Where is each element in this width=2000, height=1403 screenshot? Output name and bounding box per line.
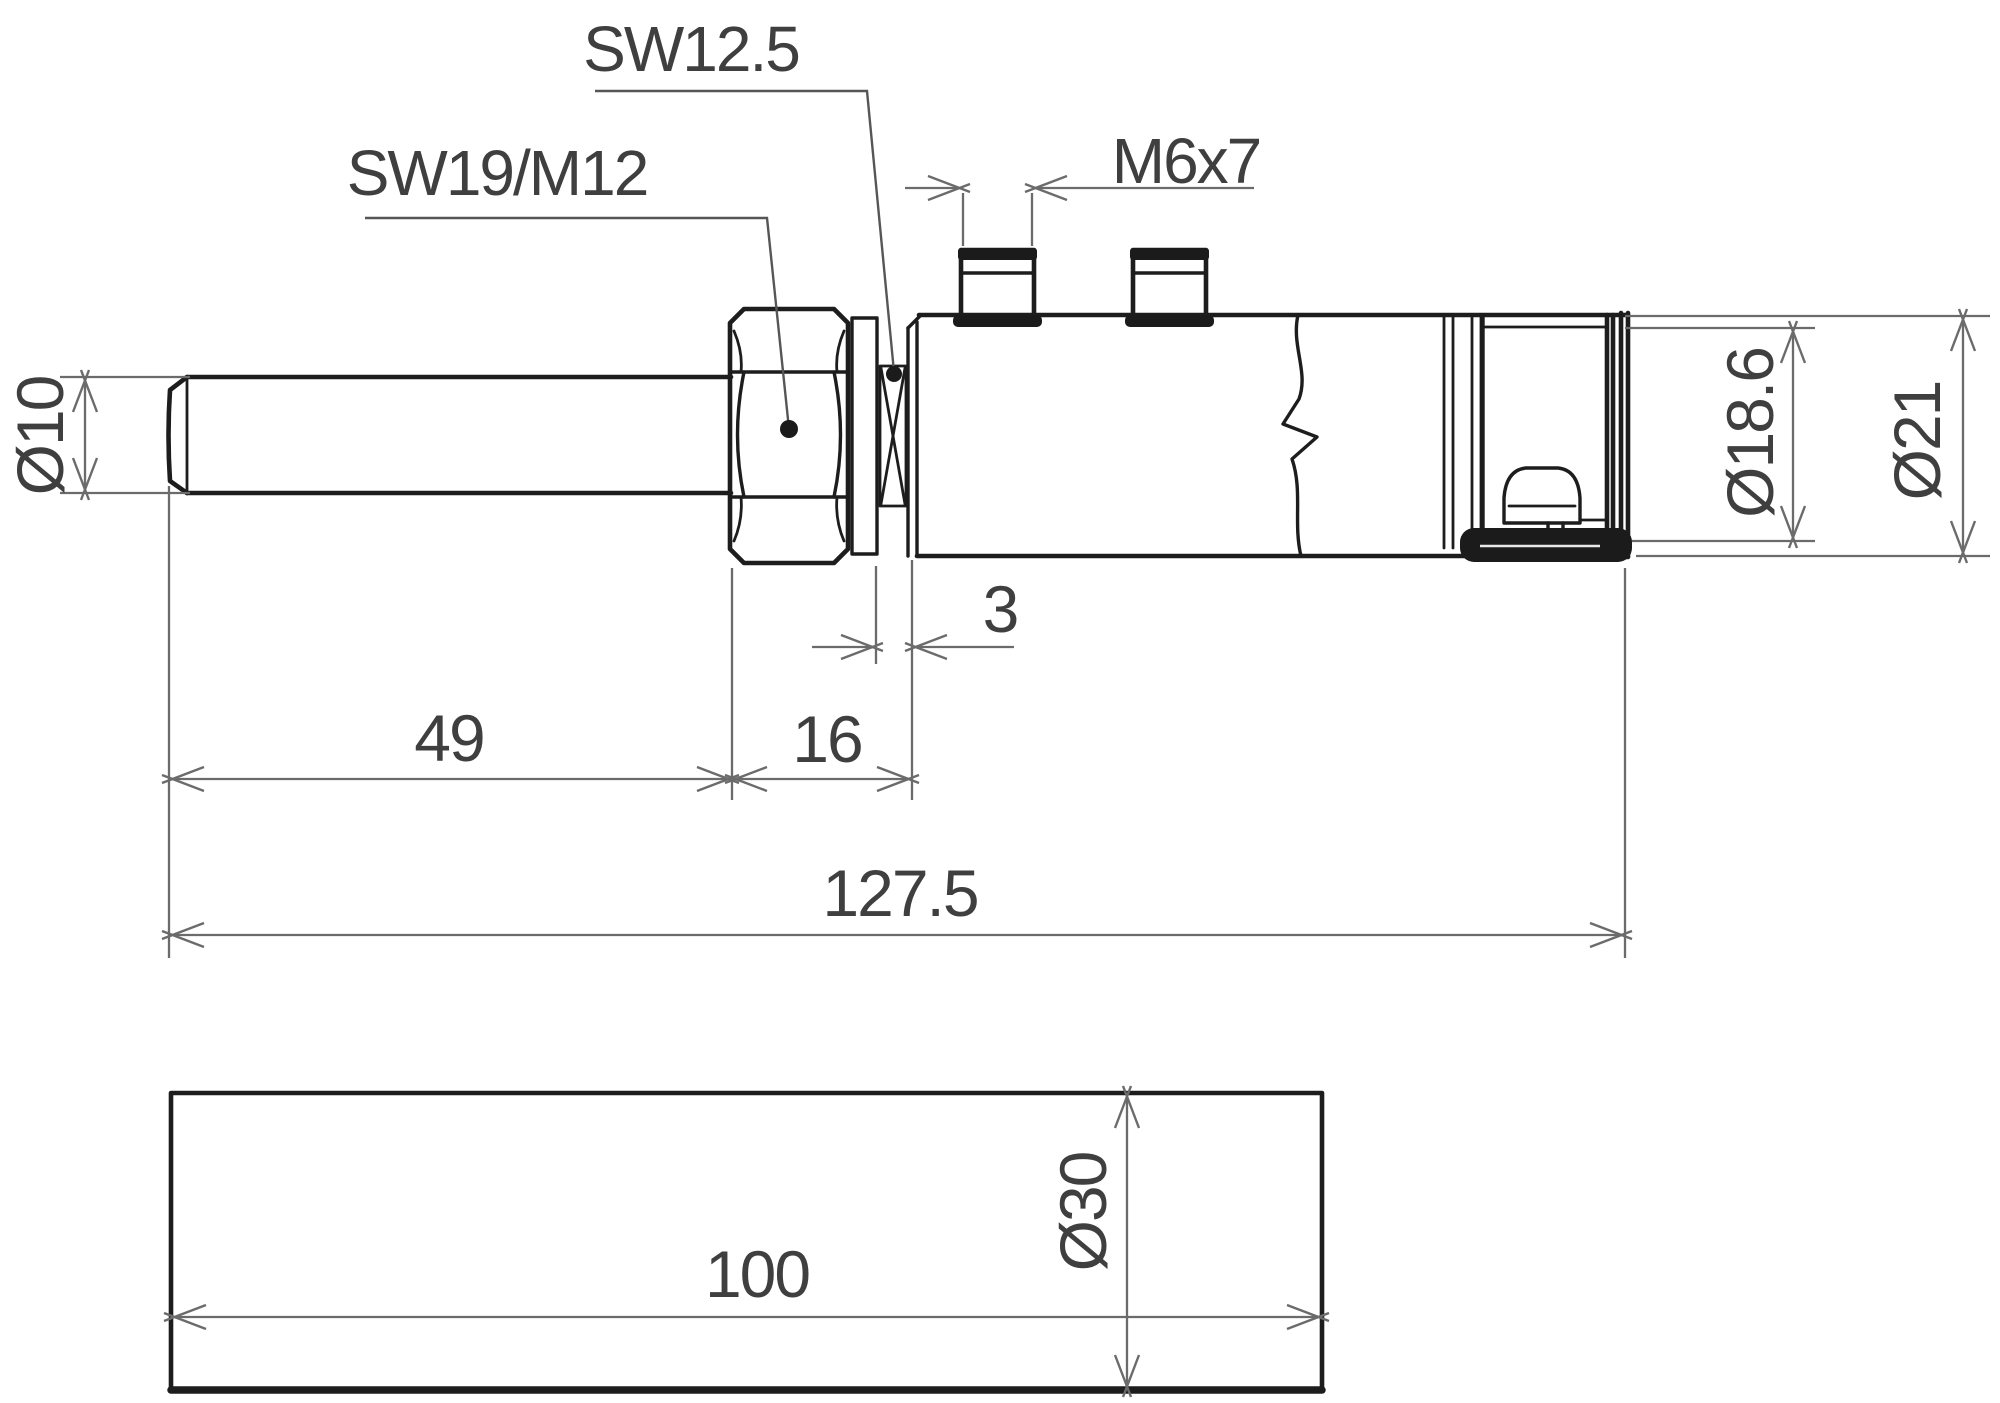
dim-probe-diameter-label: Ø10 (3, 376, 77, 495)
dim-thread-gap-label: 3 (983, 572, 1018, 646)
dim-tube-diameter-label: Ø30 (1046, 1152, 1120, 1271)
dim-hex-length-label: 16 (792, 702, 861, 776)
protection-tube-view: 100 Ø30 (171, 1093, 1322, 1390)
dimension-housing-diameter: Ø18.6 (1625, 328, 1815, 541)
callout-sw125-dot (886, 366, 902, 382)
dim-housing-diameter-label: Ø18.6 (1713, 348, 1787, 518)
probe-tube (169, 377, 732, 493)
thread-neck (852, 318, 877, 554)
dim-tube-length-label: 100 (705, 1237, 809, 1311)
dimension-probe-length: 49 (169, 486, 732, 958)
dimension-drawing-canvas: SW12.5 SW19/M12 M6x7 Ø10 3 (0, 0, 2000, 1403)
dim-overall-length-label: 127.5 (822, 856, 977, 930)
technical-drawing-page: SW12.5 SW19/M12 M6x7 Ø10 3 (0, 0, 2000, 1403)
callout-sw19-m12-label: SW19/M12 (347, 137, 648, 209)
m6-stud-1 (953, 248, 1042, 327)
dimension-hex-length: 16 (732, 702, 912, 779)
dimension-tube-diameter: Ø30 (1046, 1093, 1127, 1390)
sensor-housing (908, 315, 1628, 556)
dimension-probe-diameter: Ø10 (3, 376, 190, 495)
dim-m6x7-label: M6x7 (1112, 125, 1261, 197)
dimension-connector-diameter: Ø21 (1625, 316, 1990, 556)
dimension-overall-length: 127.5 (169, 568, 1625, 958)
dimension-tube-length: 100 (171, 1237, 1322, 1317)
callout-sw125-label: SW12.5 (583, 13, 799, 85)
callout-sw19-m12-dot (780, 420, 798, 438)
connector-grooves (1444, 315, 1481, 548)
dim-connector-diameter-label: Ø21 (1880, 382, 1954, 501)
dim-probe-length-label: 49 (414, 701, 483, 775)
m6-stud-2 (1125, 248, 1214, 327)
dimension-m6x7: M6x7 (905, 125, 1260, 246)
m12-thread-section (880, 366, 906, 506)
side-view: SW12.5 SW19/M12 M6x7 Ø10 3 (3, 13, 1990, 958)
break-line (1283, 315, 1317, 556)
m12-connector (1460, 313, 1632, 562)
